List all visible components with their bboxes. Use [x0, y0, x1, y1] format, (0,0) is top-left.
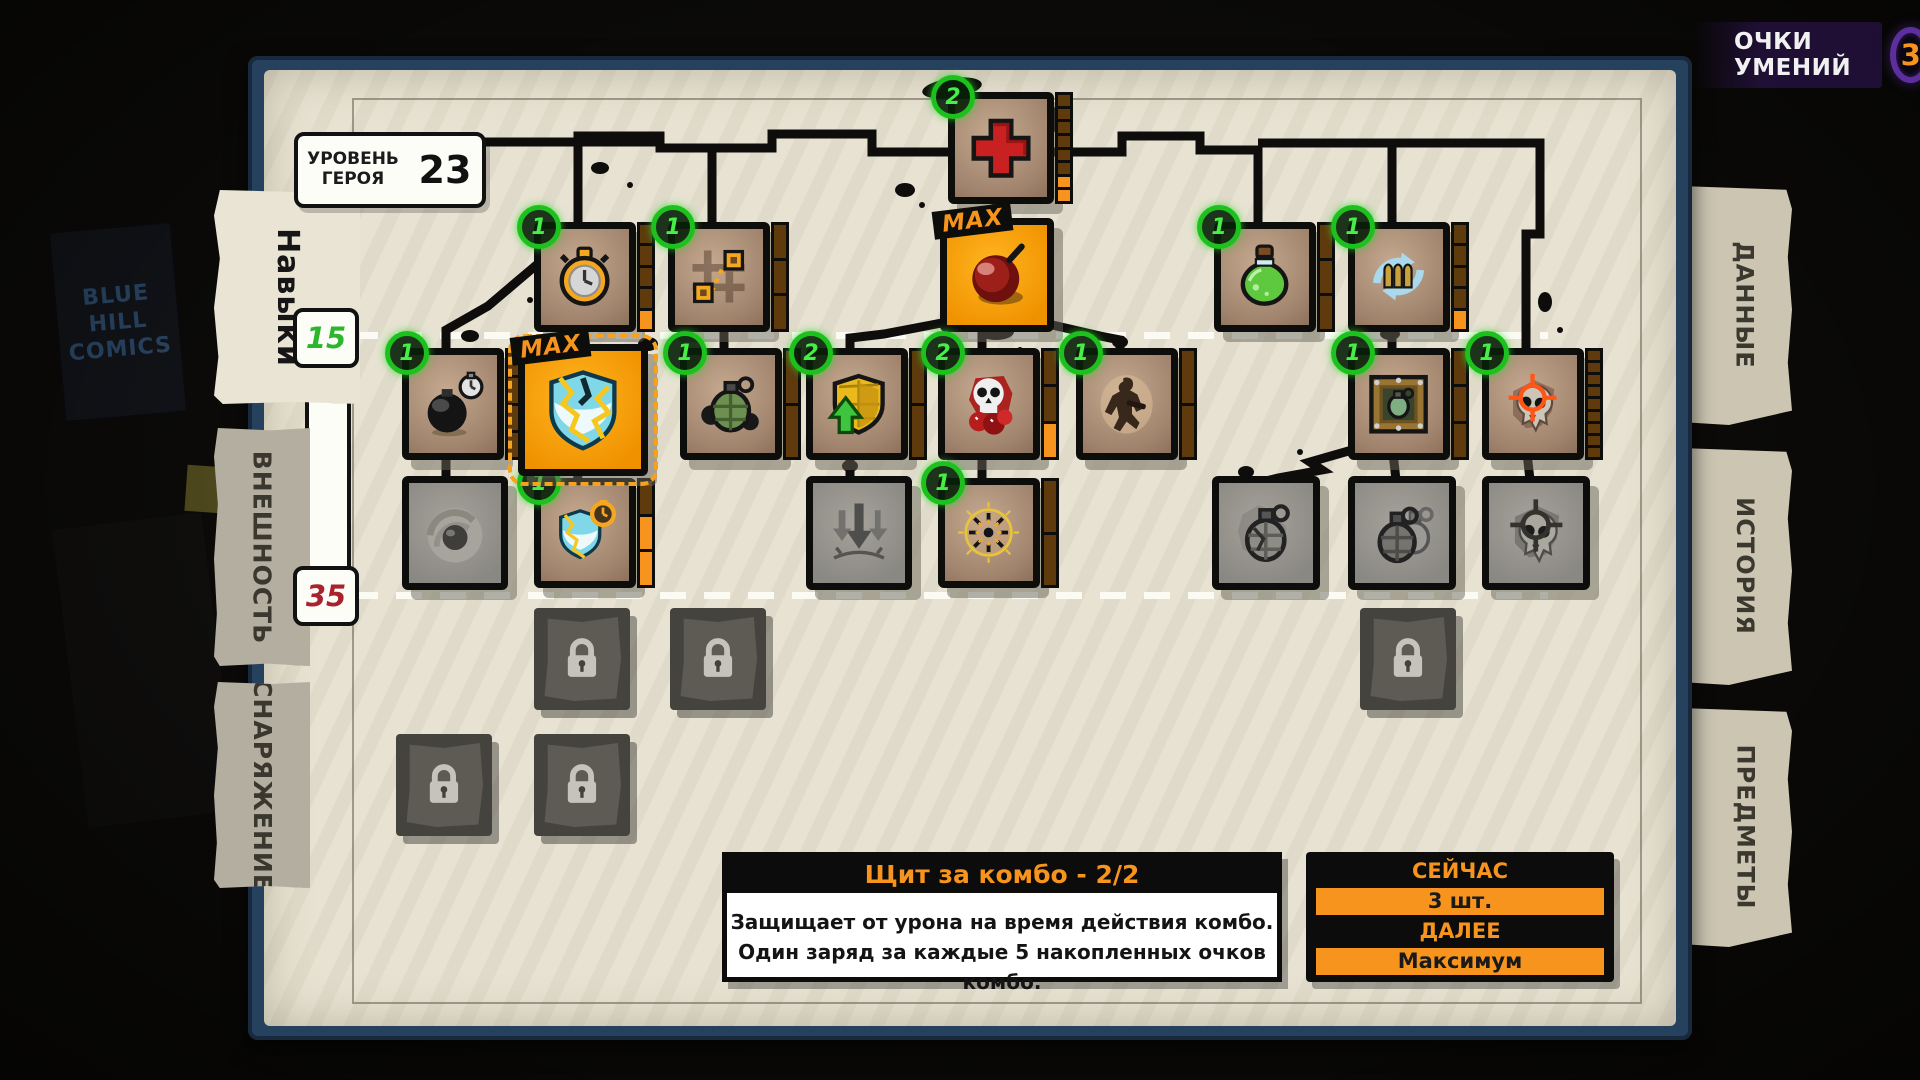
- skill-node-skull-crosshair[interactable]: 1: [1482, 348, 1584, 460]
- skill-level-badge: 1: [1331, 331, 1375, 375]
- soldier-icon: [1083, 355, 1171, 453]
- airstrike-icon: [813, 483, 905, 583]
- upgrade-current-label: СЕЙЧАС: [1316, 859, 1604, 884]
- skill-node-shield-upgrade[interactable]: 2: [806, 348, 908, 460]
- skill-level-badge: 2: [931, 75, 975, 119]
- skill-tooltip-description: Защищает от урона на время действия комб…: [727, 892, 1277, 997]
- skill-level-badge: 2: [789, 331, 833, 375]
- tab-label: ПРЕДМЕТЫ: [1731, 745, 1759, 910]
- shield-arrow-icon: [813, 355, 901, 453]
- skill-node-combo-shield[interactable]: MAX: [518, 344, 648, 476]
- skill-points-badge: 3: [1890, 27, 1920, 83]
- skill-node-airstrike[interactable]: [806, 476, 912, 590]
- skill-progress-bar: [637, 478, 655, 588]
- skill-screen: BLUE HILL COMICS ОЧКИ УМЕНИЙ 3 НавыкиВНЕ…: [0, 0, 1920, 1080]
- skill-node-locked-1[interactable]: [534, 608, 630, 710]
- tab-left-appearance[interactable]: ВНЕШНОСТЬ: [214, 428, 310, 666]
- skill-node-timed-bomb[interactable]: 1: [402, 348, 504, 460]
- tab-left-equipment[interactable]: СНАРЯЖЕНИЕ: [214, 682, 310, 888]
- lock-icon: [396, 734, 492, 836]
- skill-progress-bar: [771, 222, 789, 332]
- poster-text: COMICS: [68, 332, 173, 366]
- skill-level-badge: 1: [517, 205, 561, 249]
- grenade-cracked-icon: [1219, 483, 1313, 583]
- skill-progress-bar: [1451, 348, 1469, 460]
- skill-progress-bar: [1041, 478, 1059, 588]
- background-paper-sheet: [52, 512, 237, 828]
- skill-level-badge: 1: [1059, 331, 1103, 375]
- level-marker-35: 35: [293, 566, 359, 626]
- tab-label: СНАРЯЖЕНИЕ: [248, 679, 277, 892]
- potion-icon: [1221, 229, 1309, 325]
- grenade-green-icon: [687, 355, 775, 453]
- level-35-dashed-line: [352, 592, 1548, 599]
- skill-node-mega-bomb[interactable]: MAX: [940, 218, 1054, 332]
- stopwatch-icon: [541, 229, 629, 325]
- skill-node-locked-3[interactable]: [1360, 608, 1456, 710]
- skill-points-label: ОЧКИ УМЕНИЙ: [1694, 22, 1882, 88]
- upgrade-panel: СЕЙЧАС 3 шт. ДАЛЕЕ Максимум: [1306, 852, 1614, 982]
- radial-burst-icon: [945, 485, 1033, 581]
- skill-node-cracked-grenade[interactable]: [1212, 476, 1320, 590]
- combo-shield-icon: [525, 351, 641, 469]
- skill-node-locked-4[interactable]: [396, 734, 492, 836]
- skill-node-stopwatch[interactable]: 1: [534, 222, 636, 332]
- tab-label: ДАННЫЕ: [1731, 241, 1759, 368]
- tab-label: ВНЕШНОСТЬ: [248, 450, 277, 644]
- reload-icon: [1355, 229, 1443, 325]
- skill-level-badge: 1: [1465, 331, 1509, 375]
- skill-node-vortex[interactable]: [402, 476, 508, 590]
- skill-node-locked-2[interactable]: [670, 608, 766, 710]
- skill-node-skull-bombs[interactable]: 2: [938, 348, 1040, 460]
- skill-level-badge: 1: [385, 331, 429, 375]
- crate-grenade-icon: [1355, 355, 1443, 453]
- skill-node-reload[interactable]: 1: [1348, 222, 1450, 332]
- vortex-icon: [409, 483, 501, 583]
- skull-crosshair-icon: [1489, 355, 1577, 453]
- hero-level-value: 23: [408, 148, 482, 192]
- skill-node-shield-timer[interactable]: 1: [534, 478, 636, 588]
- hero-level-box: УРОВЕНЬ ГЕРОЯ 23: [294, 132, 486, 208]
- skill-level-badge: 1: [921, 461, 965, 505]
- skill-node-grenade[interactable]: 1: [680, 348, 782, 460]
- skill-level-badge: 1: [651, 205, 695, 249]
- skill-progress-bar: [1179, 348, 1197, 460]
- skill-node-crate-grenade[interactable]: 1: [1348, 348, 1450, 460]
- lock-icon: [534, 734, 630, 836]
- level-marker-15: 15: [293, 308, 359, 368]
- skill-tooltip-title: Щит за комбо - 2/2: [726, 856, 1278, 893]
- grenade-double-icon: [1355, 483, 1449, 583]
- bomb-icon: [947, 225, 1047, 325]
- upgrade-current-value: 3 шт.: [1316, 888, 1604, 915]
- shield-timer-icon: [541, 485, 629, 581]
- skill-node-combo-ring[interactable]: 1: [938, 478, 1040, 588]
- background-comics-poster: BLUE HILL COMICS: [48, 221, 188, 423]
- skill-node-locked-5[interactable]: [534, 734, 630, 836]
- skill-progress-bar: [1451, 222, 1469, 332]
- skill-node-potion[interactable]: 1: [1214, 222, 1316, 332]
- skill-points: ОЧКИ УМЕНИЙ 3: [1694, 22, 1920, 88]
- skill-progress-bar: [637, 222, 655, 332]
- skull-bombs-icon: [945, 355, 1033, 453]
- skill-progress-bar: [1041, 348, 1059, 460]
- skill-level-badge: 1: [663, 331, 707, 375]
- lock-icon: [534, 608, 630, 710]
- skill-progress-bar: [1585, 348, 1603, 460]
- poster-text: BLUE: [81, 280, 150, 311]
- skill-tooltip: Щит за комбо - 2/2 Защищает от урона на …: [722, 852, 1282, 982]
- tab-label: ИСТОРИЯ: [1731, 497, 1759, 635]
- skill-level-badge: 1: [1331, 205, 1375, 249]
- skill-node-teleport[interactable]: 1: [668, 222, 770, 332]
- hero-level-label: УРОВЕНЬ ГЕРОЯ: [298, 150, 408, 189]
- skull-crosshair-grey-icon: [1489, 483, 1583, 583]
- skill-node-skull-crosshair-2[interactable]: [1482, 476, 1590, 590]
- upgrade-next-value: Максимум: [1316, 948, 1604, 975]
- skill-progress-bar: [1055, 92, 1073, 204]
- skill-level-badge: 2: [921, 331, 965, 375]
- poster-text: HILL: [88, 307, 149, 337]
- skill-node-health[interactable]: 2: [948, 92, 1054, 204]
- skill-node-berserk[interactable]: 1: [1076, 348, 1178, 460]
- skill-node-double-grenade[interactable]: [1348, 476, 1456, 590]
- lock-icon: [1360, 608, 1456, 710]
- bomb-timer-icon: [409, 355, 497, 453]
- upgrade-next-label: ДАЛЕЕ: [1316, 919, 1604, 944]
- tab-left-skills[interactable]: Навыки: [214, 190, 360, 404]
- health-cross-icon: [955, 99, 1047, 197]
- teleport-icon: [675, 229, 763, 325]
- lock-icon: [670, 608, 766, 710]
- skill-progress-bar: [1317, 222, 1335, 332]
- skill-level-badge: 1: [1197, 205, 1241, 249]
